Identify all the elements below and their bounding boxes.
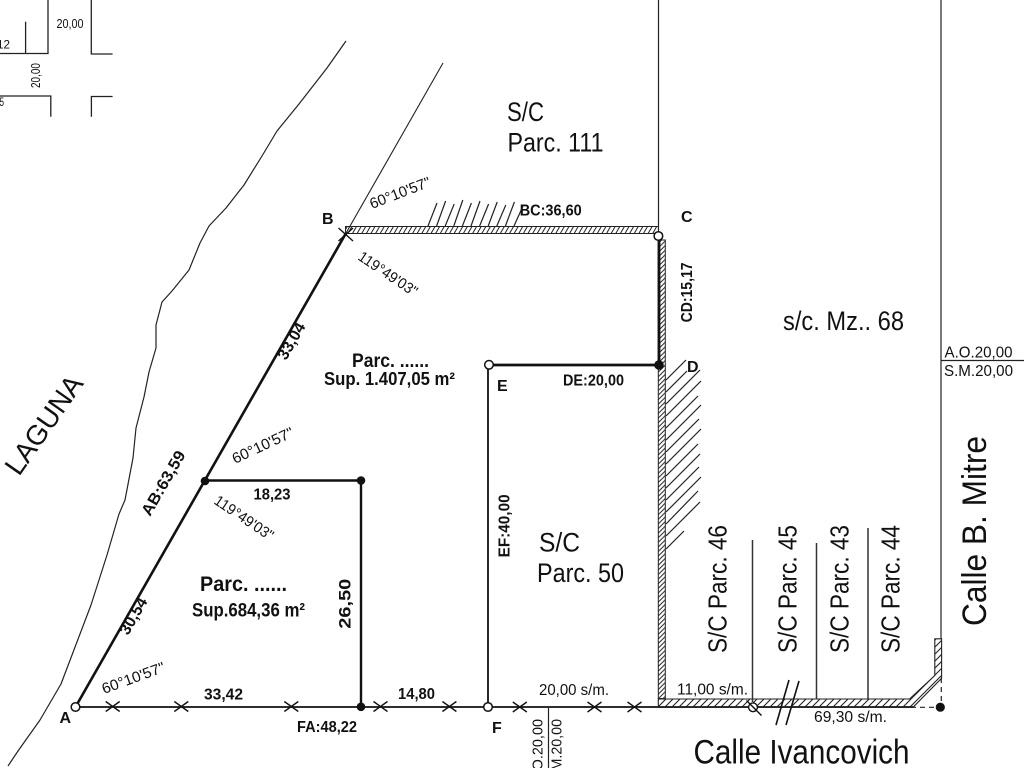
svg-text:18,23: 18,23 [254,487,291,504]
svg-text:Parc. 50: Parc. 50 [537,558,624,588]
svg-text:12: 12 [0,38,10,52]
svg-text:26,50: 26,50 [336,579,355,629]
svg-text:Parc. ......: Parc. ...... [200,573,287,596]
svg-text:D: D [687,359,699,376]
svg-text:BC:36,60: BC:36,60 [520,203,582,220]
svg-text:11,00 s/m.: 11,00 s/m. [677,682,748,699]
svg-text:15: 15 [0,95,4,109]
svg-text:S.M.20,00: S.M.20,00 [549,719,566,768]
svg-text:EF:40,00: EF:40,00 [497,494,514,557]
svg-text:20,00: 20,00 [28,63,43,88]
svg-text:S.M.20,00: S.M.20,00 [944,363,1013,380]
svg-text:A.O.20,00: A.O.20,00 [945,345,1013,362]
svg-text:DE:20,00: DE:20,00 [563,373,624,390]
svg-text:14,80: 14,80 [398,686,435,703]
svg-text:Sup.684,36 m²: Sup.684,36 m² [192,601,305,622]
svg-text:CD:15,17: CD:15,17 [679,262,696,322]
svg-text:S/C Parc. 43: S/C Parc. 43 [825,525,855,653]
svg-text:Calle B. Mitre: Calle B. Mitre [956,436,994,626]
svg-text:S/C Parc. 46: S/C Parc. 46 [703,525,733,653]
svg-text:Calle Ivancovich: Calle Ivancovich [694,734,910,768]
svg-text:Sup. 1.407,05 m²: Sup. 1.407,05 m² [324,369,455,389]
svg-text:20,00: 20,00 [57,16,84,31]
svg-text:E: E [497,378,508,395]
svg-text:S/C: S/C [507,97,544,127]
svg-text:S/C: S/C [539,528,580,558]
svg-text:S/C Parc. 45: S/C Parc. 45 [773,525,803,653]
svg-text:S/C Parc. 44: S/C Parc. 44 [876,525,906,653]
svg-text:20,00 s/m.: 20,00 s/m. [539,682,609,699]
svg-text:C: C [681,209,693,226]
svg-text:FA:48,22: FA:48,22 [297,719,357,736]
svg-text:s/c. Mz.. 68: s/c. Mz.. 68 [783,306,904,336]
svg-text:69,30 s/m.: 69,30 s/m. [814,709,887,726]
svg-text:A.O.20,00: A.O.20,00 [530,719,547,768]
svg-text:A: A [60,710,72,727]
svg-text:Parc. 111: Parc. 111 [508,128,604,158]
svg-text:F: F [492,720,502,737]
svg-text:B: B [322,211,334,228]
svg-text:33,42: 33,42 [204,687,243,704]
